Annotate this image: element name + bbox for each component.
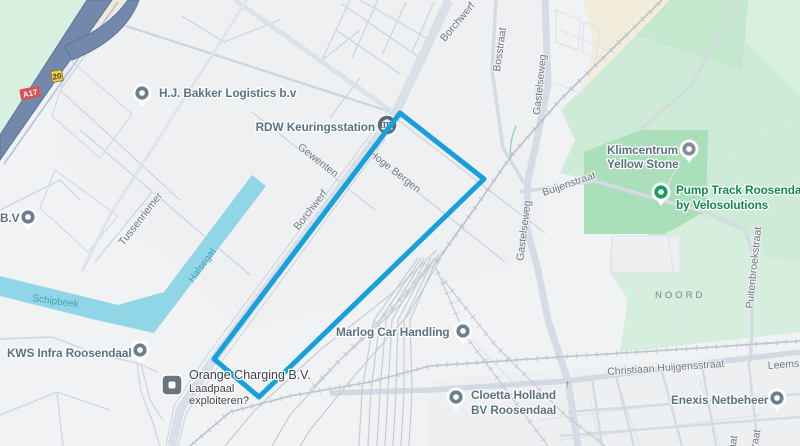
svg-text:NOORD: NOORD <box>655 290 705 301</box>
svg-text:B.V: B.V <box>0 211 20 225</box>
svg-text:↑: ↑ <box>565 379 570 390</box>
svg-text:RDW Keuringsstation: RDW Keuringsstation <box>256 120 375 134</box>
svg-text:Marlog Car Handling: Marlog Car Handling <box>336 325 449 339</box>
svg-text:Yellow Stone: Yellow Stone <box>607 157 679 171</box>
svg-text:BV Roosendaal: BV Roosendaal <box>471 403 556 417</box>
svg-text:H.J. Bakker Logistics b.v: H.J. Bakker Logistics b.v <box>159 86 297 100</box>
svg-text:Leems: Leems <box>767 358 799 372</box>
svg-text:Pump Track Roosendaal: Pump Track Roosendaal <box>676 183 800 197</box>
svg-text:Orange Charging B.V.: Orange Charging B.V. <box>189 368 311 382</box>
svg-text:exploiteren?: exploiteren? <box>189 395 249 407</box>
svg-text:by Velosolutions: by Velosolutions <box>676 198 769 212</box>
svg-text:Cloetta Holland: Cloetta Holland <box>471 388 556 402</box>
svg-text:Enexis Netbeheer: Enexis Netbeheer <box>671 393 769 407</box>
svg-text:Laadpaal: Laadpaal <box>189 383 234 395</box>
svg-text:KWS Infra Roosendaal: KWS Infra Roosendaal <box>7 346 132 360</box>
svg-text:Klimcentrum: Klimcentrum <box>607 143 678 157</box>
